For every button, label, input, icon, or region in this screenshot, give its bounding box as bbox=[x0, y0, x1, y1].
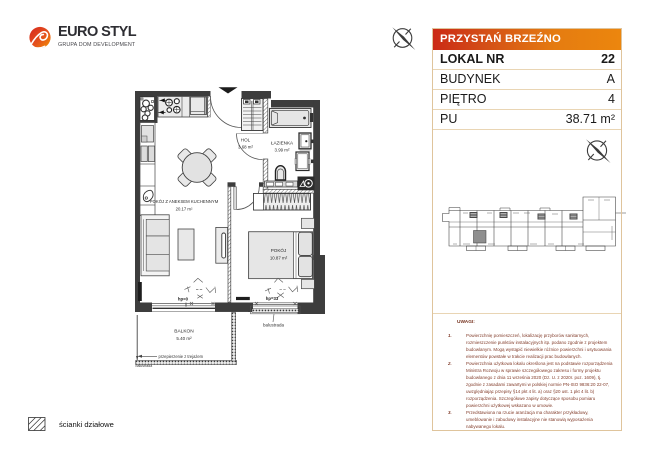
svg-text:20.17 m²: 20.17 m² bbox=[176, 207, 193, 212]
svg-text:balustrada: balustrada bbox=[136, 364, 153, 368]
svg-text:hp=33: hp=33 bbox=[266, 296, 279, 301]
svg-text:HOL: HOL bbox=[241, 138, 251, 143]
svg-text:ścianki działowe: ścianki działowe bbox=[59, 420, 114, 429]
svg-text:ŁAZIENKA: ŁAZIENKA bbox=[271, 141, 294, 146]
svg-text:3.68 m²: 3.68 m² bbox=[238, 145, 253, 150]
svg-text:10.87 m²: 10.87 m² bbox=[270, 256, 288, 261]
svg-text:3.99 m²: 3.99 m² bbox=[275, 148, 290, 153]
svg-text:5.40 m²: 5.40 m² bbox=[176, 336, 192, 341]
svg-text:balustrada: balustrada bbox=[263, 323, 285, 328]
svg-text:hp=0: hp=0 bbox=[178, 297, 189, 302]
svg-text:przepierzenie z trejażem: przepierzenie z trejażem bbox=[159, 354, 204, 359]
svg-text:POKÓJ Z ANEKSEM KUCHENNYM: POKÓJ Z ANEKSEM KUCHENNYM bbox=[150, 199, 219, 204]
svg-text:POKÓJ: POKÓJ bbox=[271, 247, 287, 253]
svg-text:BALKON: BALKON bbox=[174, 329, 194, 335]
